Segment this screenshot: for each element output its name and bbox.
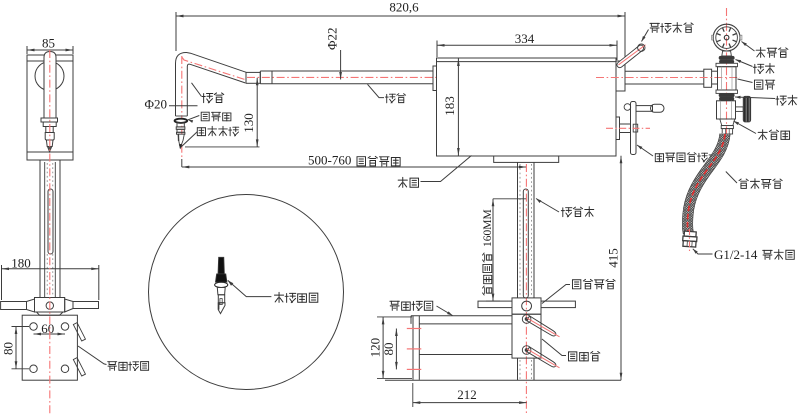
svg-text:80: 80	[1, 342, 16, 355]
svg-text:85: 85	[42, 36, 55, 51]
svg-text:130: 130	[241, 113, 256, 133]
svg-text:212: 212	[457, 387, 477, 402]
svg-text:820,6: 820,6	[389, 0, 419, 15]
svg-text:160MM: 160MM	[482, 209, 494, 247]
svg-text:80: 80	[381, 343, 396, 356]
svg-text:60: 60	[41, 321, 54, 336]
svg-text:G1/2-14: G1/2-14	[714, 247, 758, 262]
svg-text:180: 180	[11, 256, 31, 271]
svg-text:415: 415	[605, 248, 620, 268]
svg-text:183: 183	[442, 96, 457, 116]
svg-text:500-760: 500-760	[308, 152, 351, 167]
svg-text:Φ22: Φ22	[325, 27, 340, 50]
svg-text:Φ20: Φ20	[145, 97, 168, 112]
svg-text:334: 334	[515, 31, 535, 46]
